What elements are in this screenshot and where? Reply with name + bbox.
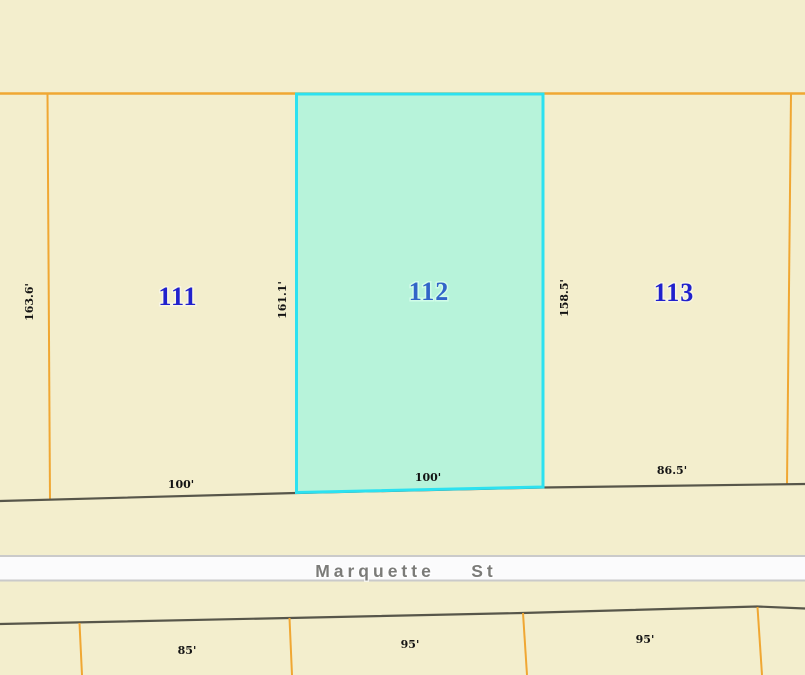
south-lot-2-front-dimension: 95' xyxy=(401,638,420,651)
lot-113-number: 113 xyxy=(654,278,695,307)
lot-113-front-dimension: 86.5' xyxy=(657,464,687,477)
lot-113-side-dimension: 158.5' xyxy=(558,279,571,317)
street-name-suffix: St xyxy=(471,561,497,581)
south-lot-3-front-dimension: 95' xyxy=(636,633,655,646)
lot-112-front-dimension: 100' xyxy=(415,471,441,484)
south-lot-1-front-dimension: 85' xyxy=(178,644,197,657)
street-name-label: Marquette xyxy=(315,561,435,581)
lot-111-side-dimension: 163.6' xyxy=(23,283,36,321)
lot-112-side-dimension: 161.1' xyxy=(276,281,289,319)
lot-111-front-dimension: 100' xyxy=(168,478,194,491)
lot-111-number: 111 xyxy=(158,282,197,311)
parcel-south-1[interactable] xyxy=(0,618,292,675)
lot-112-number: 112 xyxy=(409,277,450,306)
parcel-map: 111 112 113 163.6' 161.1' 158.5' 100' 10… xyxy=(0,0,805,675)
